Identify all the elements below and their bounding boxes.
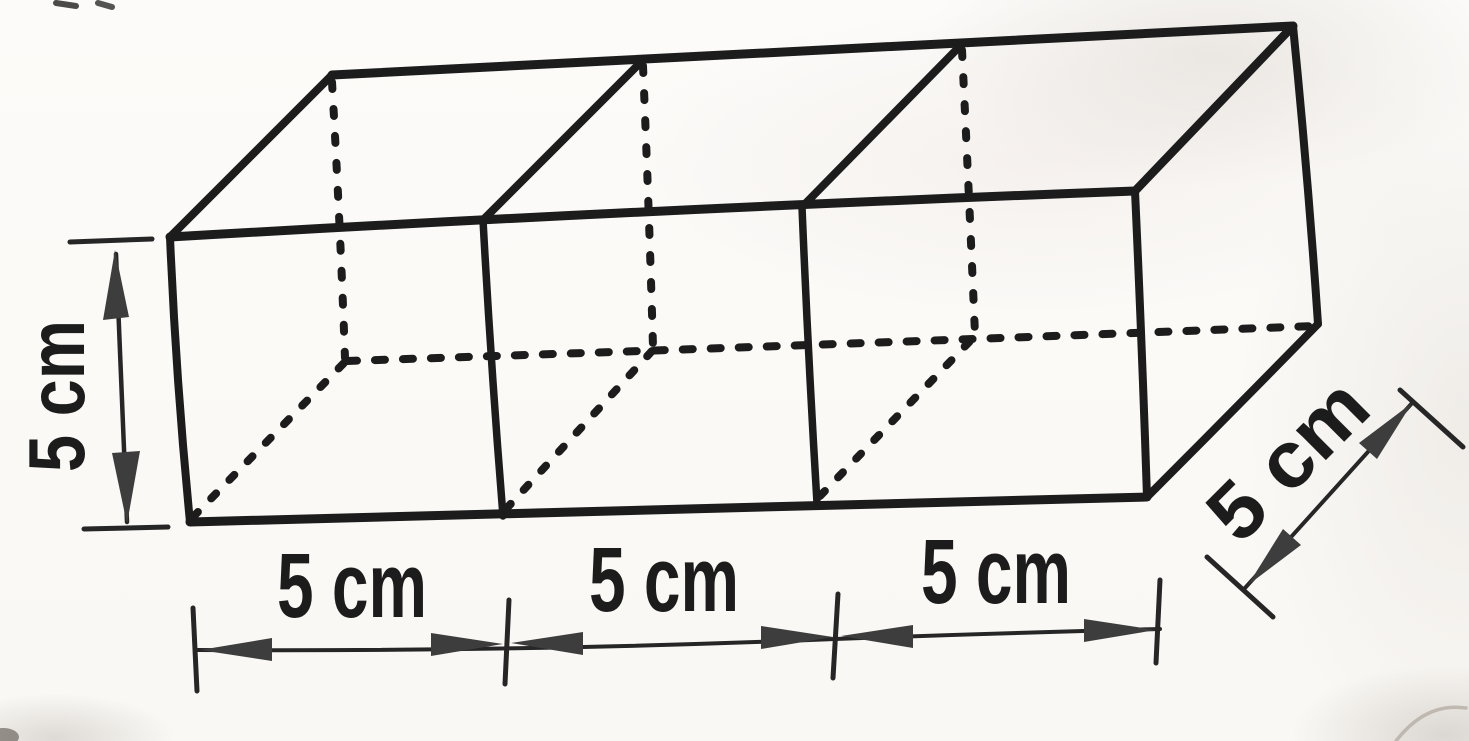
back-top-edge (332, 26, 1293, 75)
scan-curl-bottom-right (1396, 707, 1466, 741)
front-left-edge (170, 237, 190, 522)
divider-2-top-edge (802, 44, 962, 207)
height-label: 5 cm (12, 320, 101, 472)
scan-smudge-bottom-left (0, 728, 19, 741)
height-arrow-down (112, 451, 140, 524)
front-bottom-edge (190, 497, 1147, 522)
width-seg1-arrow-right (431, 633, 503, 656)
front-right-edge (1135, 191, 1147, 497)
scan-speck-top-1 (56, 3, 76, 6)
height-extension-tick-top (70, 239, 152, 242)
back-left-hidden-edge (332, 82, 345, 358)
depth-tick-upper (1400, 390, 1463, 447)
width-seg2-arrow-right (761, 626, 833, 649)
left-bottom-hidden-edge (193, 363, 344, 517)
back-right-edge (1293, 26, 1318, 324)
cuboid-figure: 5 cm 5 cm 5 cm 5 cm 5 cm (0, 0, 1469, 741)
depth-label: 5 cm (1189, 361, 1386, 558)
divider-2-back-hidden-edge (962, 50, 975, 334)
width-tick-0 (193, 608, 197, 691)
width-seg2-arrow-left (511, 632, 583, 655)
width-seg1-arrow-left (200, 638, 272, 661)
width-seg3-arrow-left (841, 625, 913, 648)
width-segment-1-label: 5 cm (277, 535, 427, 637)
height-extension-tick-bottom (84, 527, 168, 529)
divider-1-front-edge (483, 220, 503, 516)
width-tick-3 (1156, 580, 1160, 663)
dimension-labels: 5 cm 5 cm 5 cm 5 cm 5 cm (12, 320, 1386, 637)
divider-2-front-edge (802, 207, 817, 503)
divider-1-top-edge (483, 60, 643, 220)
top-left-depth-edge (170, 75, 332, 237)
height-arrow-up (103, 250, 129, 320)
width-tick-2 (833, 594, 838, 678)
divider-1-back-hidden-edge (643, 66, 653, 347)
width-tick-1 (505, 600, 509, 684)
divider-1-bottom-hidden-edge (506, 351, 652, 509)
divider-2-bottom-hidden-edge (820, 338, 973, 496)
width-segment-3-label: 5 cm (921, 521, 1071, 623)
scan-speck-top-2 (98, 3, 112, 7)
width-segment-2-label: 5 cm (589, 529, 739, 631)
scanned-page: 5 cm 5 cm 5 cm 5 cm 5 cm (0, 0, 1469, 741)
top-right-depth-edge (1135, 26, 1293, 191)
width-seg3-arrow-right (1084, 619, 1156, 642)
